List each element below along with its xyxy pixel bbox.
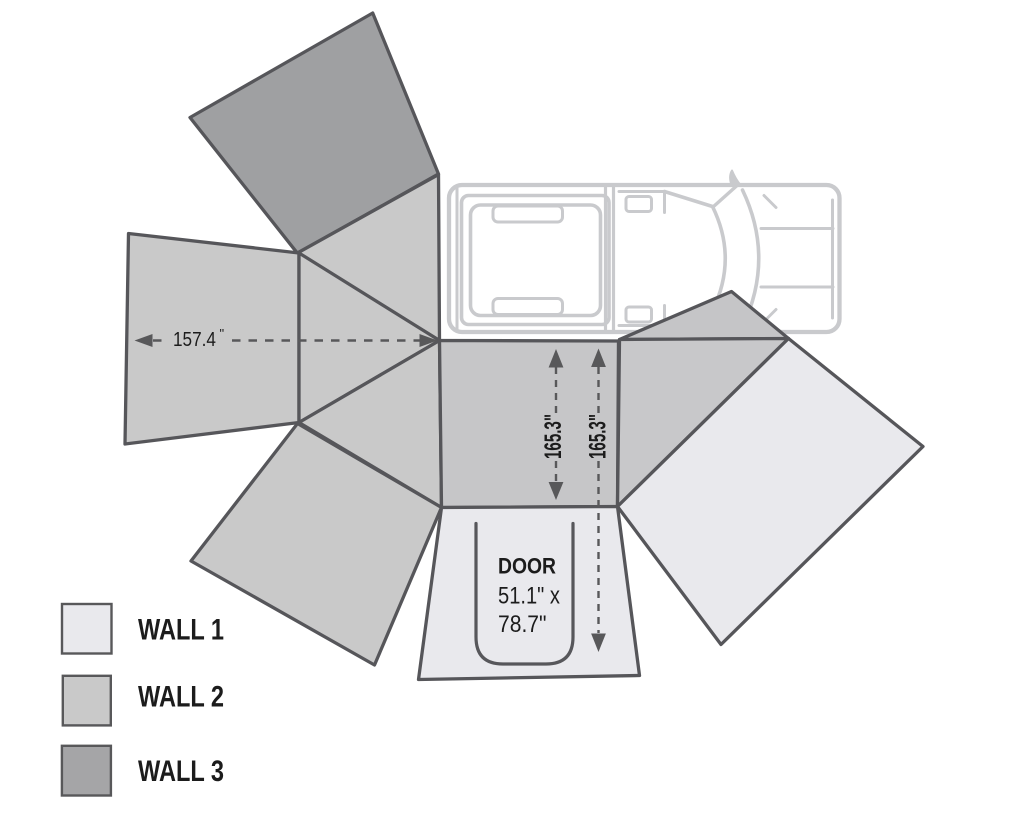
svg-text:157.4: 157.4 <box>173 329 216 351</box>
svg-text:WALL 1: WALL 1 <box>138 614 224 647</box>
svg-text:51.1" x: 51.1" x <box>498 583 560 610</box>
svg-text:78.7": 78.7" <box>498 611 547 638</box>
svg-text:WALL 3: WALL 3 <box>138 755 224 788</box>
svg-text:": " <box>220 326 225 341</box>
svg-text:165.3": 165.3" <box>540 414 567 459</box>
svg-text:WALL 2: WALL 2 <box>138 680 224 713</box>
svg-text:165.3": 165.3" <box>585 414 612 459</box>
svg-text:DOOR: DOOR <box>498 554 556 579</box>
